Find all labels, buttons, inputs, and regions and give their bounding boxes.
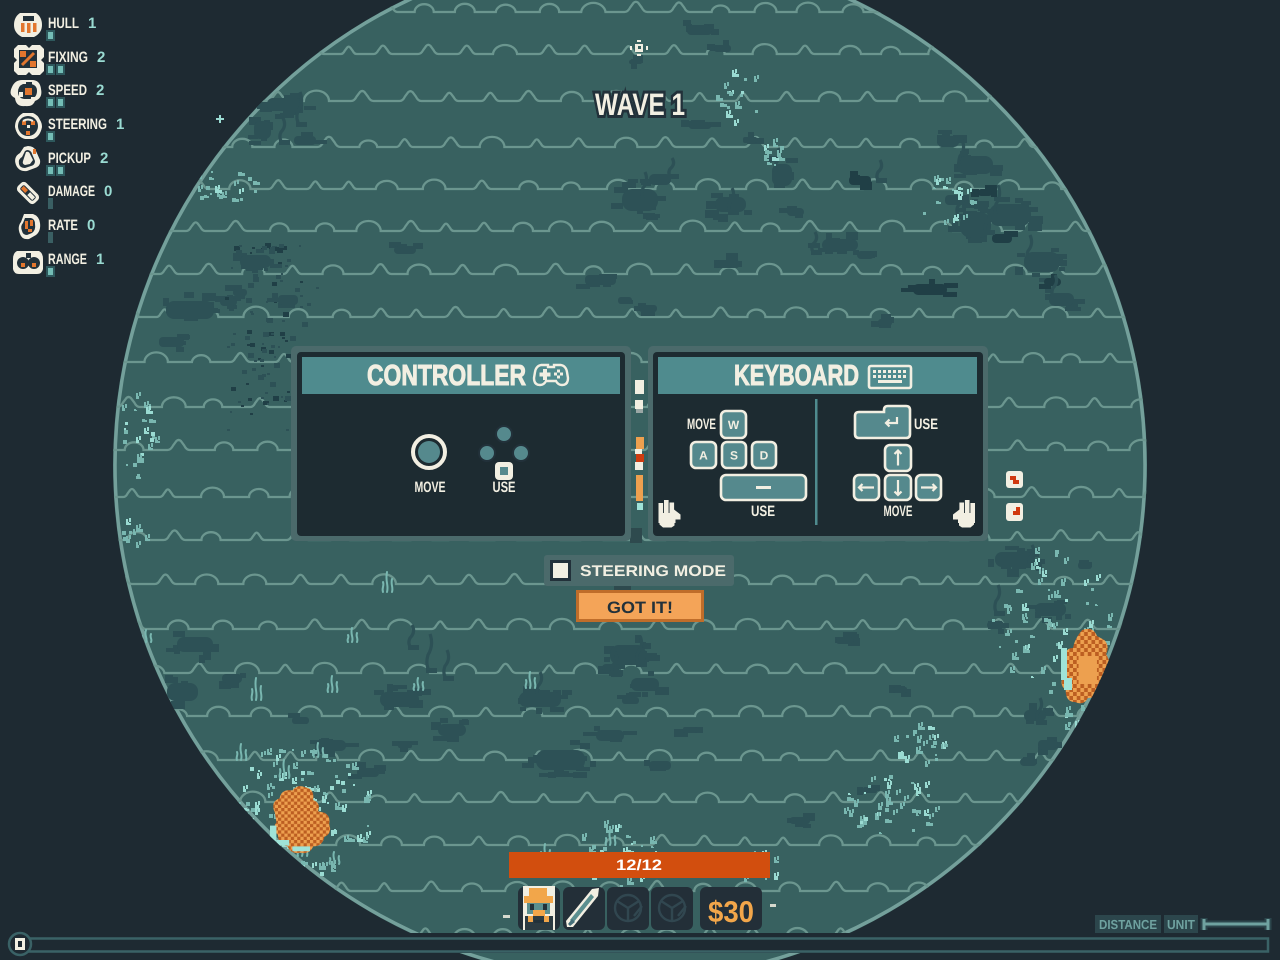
svg-text:STEERING MODE: STEERING MODE: [580, 563, 726, 580]
svg-text:2: 2: [96, 82, 104, 99]
svg-text:RATE: RATE: [48, 217, 78, 234]
svg-text:MOVE: MOVE: [687, 416, 716, 433]
svg-text:1: 1: [96, 251, 104, 268]
svg-text:KEYBOARD: KEYBOARD: [734, 360, 859, 392]
svg-text:2: 2: [97, 49, 105, 66]
svg-text:PICKUP: PICKUP: [48, 150, 91, 167]
svg-text:GOT IT!: GOT IT!: [607, 599, 673, 617]
svg-text:A: A: [699, 449, 708, 463]
svg-text:DAMAGE: DAMAGE: [48, 183, 95, 200]
svg-text:S: S: [730, 449, 738, 463]
svg-text:FIXING: FIXING: [48, 49, 88, 66]
svg-text:W: W: [728, 418, 740, 432]
svg-text:1: 1: [88, 15, 96, 32]
svg-text:DISTANCE: DISTANCE: [1099, 917, 1157, 932]
svg-text:SPEED: SPEED: [48, 82, 87, 99]
svg-text:HULL: HULL: [48, 15, 79, 32]
svg-text:MOVE: MOVE: [884, 503, 913, 520]
svg-text:0: 0: [104, 183, 112, 200]
svg-text:STEERING: STEERING: [48, 116, 107, 133]
svg-text:UNIT: UNIT: [1167, 917, 1195, 932]
svg-text:0: 0: [87, 217, 95, 234]
svg-text:USE: USE: [493, 479, 516, 496]
svg-text:12/12: 12/12: [616, 857, 662, 874]
svg-text:CONTROLLER: CONTROLLER: [367, 360, 526, 392]
svg-text:2: 2: [100, 150, 108, 167]
svg-text:USE: USE: [751, 503, 775, 520]
svg-text:MOVE: MOVE: [415, 479, 446, 496]
svg-text:D: D: [760, 449, 769, 463]
svg-text:RANGE: RANGE: [48, 251, 87, 268]
svg-text:USE: USE: [914, 416, 938, 433]
svg-text:1: 1: [116, 116, 124, 133]
svg-text:WAVE 1: WAVE 1: [595, 87, 685, 122]
svg-text:$30: $30: [708, 896, 754, 929]
